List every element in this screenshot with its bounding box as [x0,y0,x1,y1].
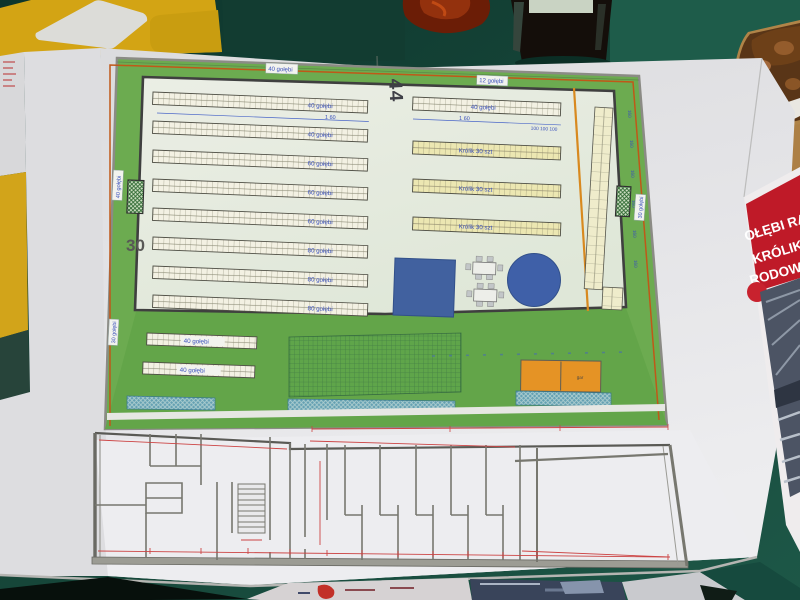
svg-text:40 gołębi: 40 gołębi [307,131,332,139]
svg-text:80 gołębi: 80 gołębi [307,305,332,313]
svg-text:40 gołębi: 40 gołębi [470,104,495,112]
svg-text:40 gołębi: 40 gołębi [116,175,123,198]
svg-text:40 gołębi: 40 gołębi [268,67,293,74]
svg-text:12 gołębi: 12 gołębi [479,78,504,85]
svg-text:Królik 30 szt: Królik 30 szt [459,147,493,155]
svg-text:Królik 30 szt: Królik 30 szt [459,223,493,231]
svg-text:80 gołębi: 80 gołębi [307,247,332,255]
svg-text:1 60: 1 60 [459,116,470,122]
svg-text:160: 160 [629,140,634,148]
svg-text:160: 160 [633,260,638,268]
svg-text:40 gołębi: 40 gołębi [307,102,332,110]
svg-text:44: 44 [384,78,406,103]
svg-text:160: 160 [630,170,635,178]
svg-text:60 gołębi: 60 gołębi [307,189,332,197]
svg-text:80 gołębi: 80 gołębi [307,276,332,284]
svg-text:1 60: 1 60 [325,115,336,121]
svg-text:160: 160 [627,110,632,118]
svg-text:30 gołębi: 30 gołębi [111,321,118,343]
svg-text:gar: gar [577,375,584,380]
svg-text:60 gołębi: 60 gołębi [307,218,332,226]
svg-text:30: 30 [126,236,145,255]
svg-text:40 gołębi: 40 gołębi [184,338,209,346]
svg-text:Królik 30 szt: Królik 30 szt [459,185,493,193]
svg-text:160: 160 [632,230,637,238]
svg-text:100 100 100: 100 100 100 [531,126,558,133]
svg-text:40 gołębi: 40 gołębi [180,367,205,375]
svg-text:60 gołębi: 60 gołębi [307,160,332,168]
